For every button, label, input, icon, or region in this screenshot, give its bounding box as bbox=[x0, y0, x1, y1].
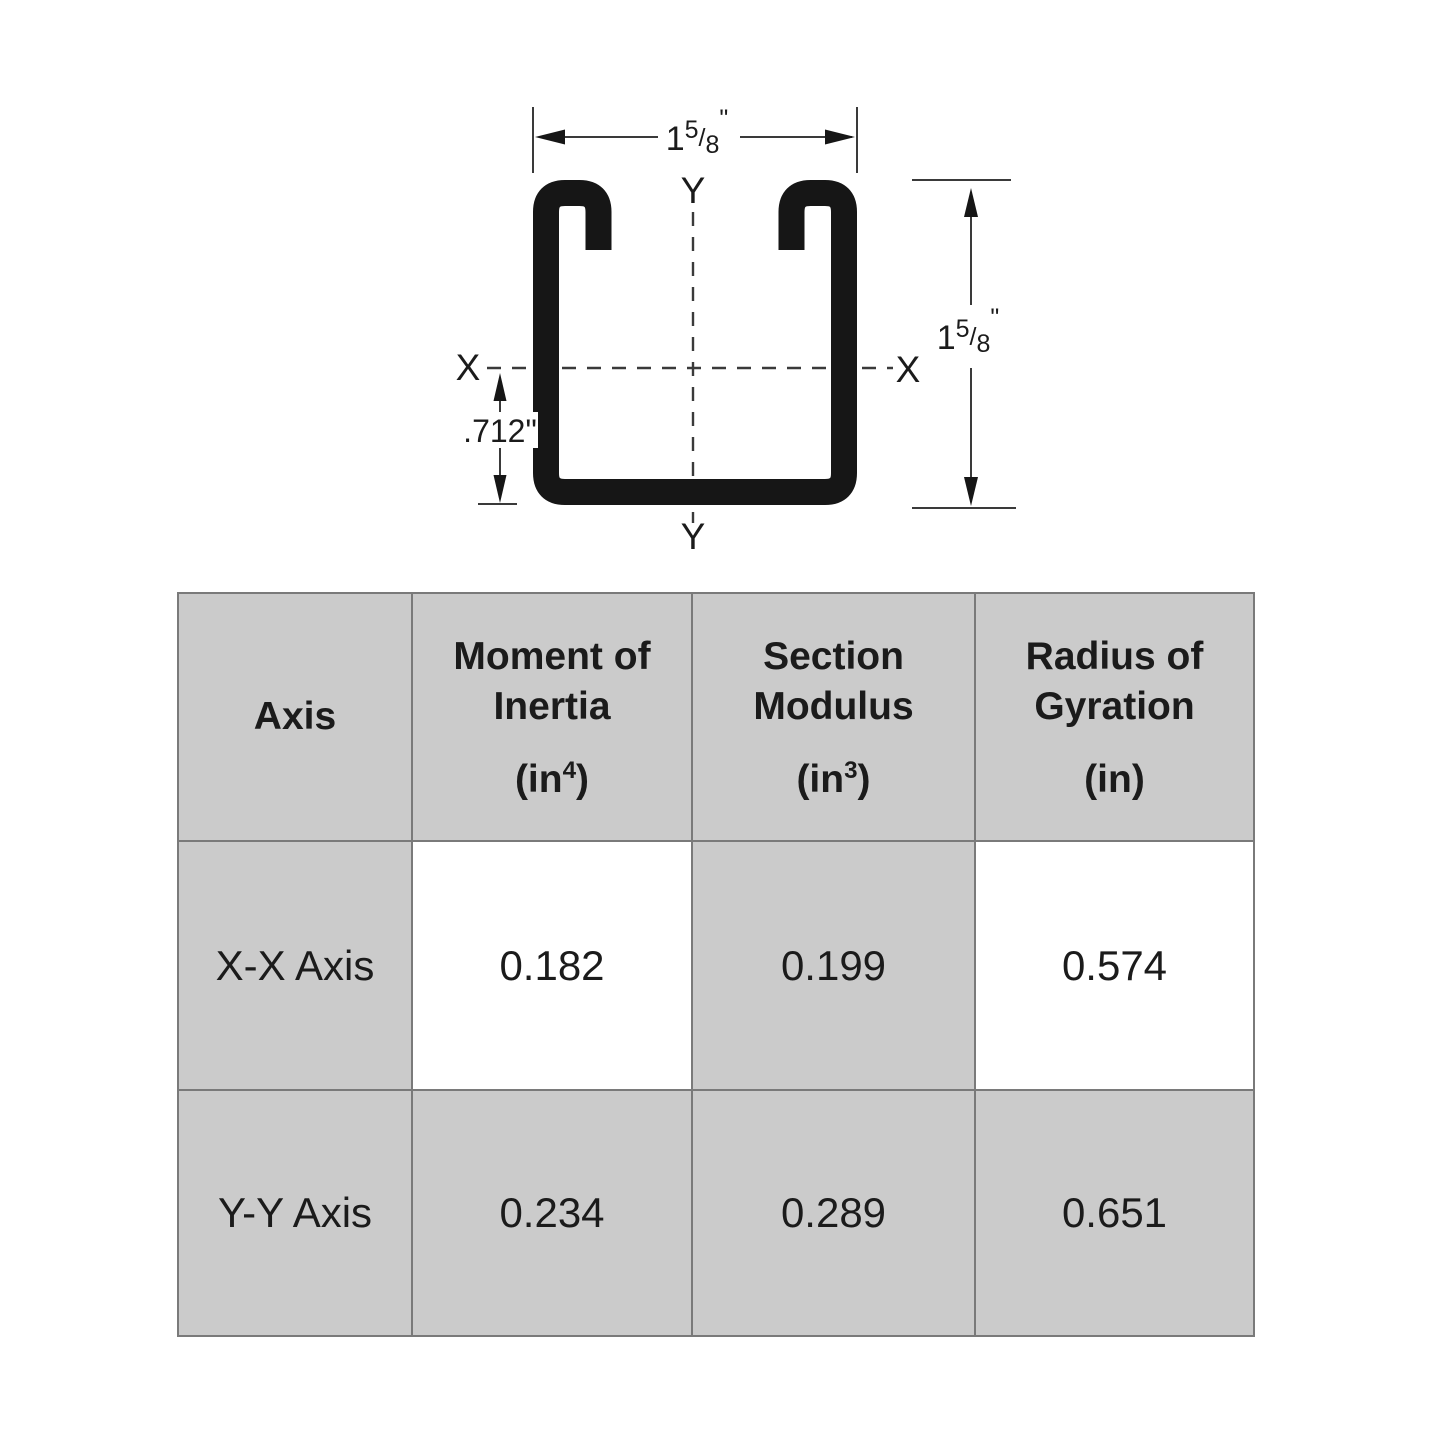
header-title-line2: Inertia bbox=[493, 682, 610, 732]
arrow-down-icon bbox=[494, 475, 507, 503]
header-title-line1: Radius of bbox=[1026, 632, 1204, 682]
header-title: Axis bbox=[254, 692, 336, 742]
height-dimension-label: 15/8" bbox=[937, 304, 1000, 358]
header-unit: (in4) bbox=[515, 758, 589, 802]
width-dimension: 15/8" bbox=[533, 105, 857, 173]
arrow-up-icon bbox=[494, 373, 507, 401]
arrow-left-icon bbox=[535, 130, 565, 145]
header-radius-of-gyration: Radius of Gyration (in) bbox=[976, 594, 1255, 842]
header-title-line1: Section bbox=[763, 632, 904, 682]
section-properties-table: Axis Moment of Inertia (in4) Section Mod… bbox=[177, 592, 1255, 1337]
header-title-line1: Moment of bbox=[453, 632, 650, 682]
arrow-down-icon bbox=[964, 477, 978, 506]
row-yy-axis-label: Y-Y Axis bbox=[179, 1091, 413, 1337]
header-title-line2: Gyration bbox=[1034, 682, 1194, 732]
arrow-up-icon bbox=[964, 188, 978, 217]
header-unit: (in) bbox=[1084, 758, 1145, 802]
row-yy-moment-of-inertia: 0.234 bbox=[413, 1091, 693, 1337]
strut-channel-diagram: 15/8" 15/8" .712" X X Y Y bbox=[0, 0, 1445, 580]
page: 15/8" 15/8" .712" X X Y Y bbox=[0, 0, 1445, 1445]
row-xx-axis-label: X-X Axis bbox=[179, 842, 413, 1091]
row-yy-section-modulus: 0.289 bbox=[693, 1091, 976, 1337]
x-axis-label-right: X bbox=[896, 349, 921, 390]
header-moment-of-inertia: Moment of Inertia (in4) bbox=[413, 594, 693, 842]
row-xx-section-modulus: 0.199 bbox=[693, 842, 976, 1091]
row-yy-radius-of-gyration: 0.651 bbox=[976, 1091, 1255, 1337]
row-xx-radius-of-gyration: 0.574 bbox=[976, 842, 1255, 1091]
centroid-dimension: .712" bbox=[462, 373, 538, 504]
y-axis-label-top: Y bbox=[681, 170, 706, 211]
header-unit: (in3) bbox=[796, 758, 870, 802]
arrow-right-icon bbox=[825, 130, 855, 145]
x-axis-label-left: X bbox=[456, 347, 481, 388]
width-dimension-label: 15/8" bbox=[666, 105, 729, 159]
row-xx-moment-of-inertia: 0.182 bbox=[413, 842, 693, 1091]
header-section-modulus: Section Modulus (in3) bbox=[693, 594, 976, 842]
header-axis: Axis bbox=[179, 594, 413, 842]
centroid-dimension-label: .712" bbox=[463, 413, 537, 449]
channel-cross-section-outline bbox=[546, 193, 844, 492]
header-title-line2: Modulus bbox=[753, 682, 913, 732]
height-dimension: 15/8" bbox=[912, 180, 1016, 508]
y-axis-label-bottom: Y bbox=[681, 516, 706, 557]
